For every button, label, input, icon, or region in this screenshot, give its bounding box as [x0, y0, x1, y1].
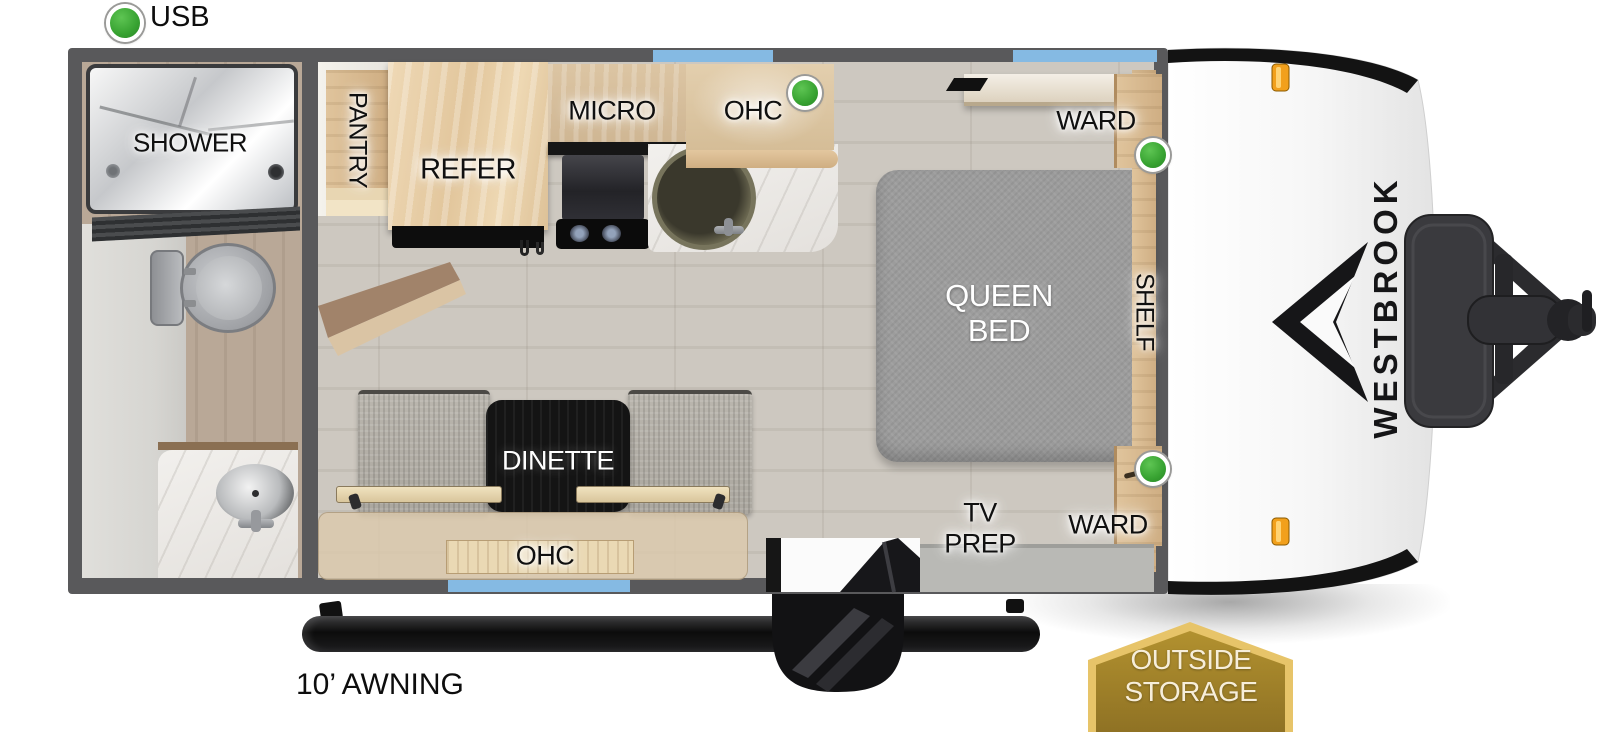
- ward-top-label: WARD: [1056, 106, 1136, 137]
- door-frame-post: [766, 538, 781, 592]
- usb-port-ward-top-icon: [1136, 138, 1170, 172]
- tv-prep-label-line2: PREP: [944, 529, 1016, 560]
- entry-step-wedge: [836, 536, 924, 594]
- queen-bed-label-line2: BED: [968, 313, 1030, 349]
- toilet-tank: [150, 250, 184, 326]
- ohc-front-strip: [686, 150, 838, 168]
- burner-icon: [570, 225, 589, 242]
- refer-label: REFER: [420, 154, 516, 187]
- coupler-latch: [1582, 290, 1592, 332]
- pantry-label: PANTRY: [343, 92, 372, 188]
- floorplan-diagram: USB WES: [0, 0, 1600, 732]
- burner-icon: [602, 225, 621, 242]
- cabinet-hook-icon: [536, 242, 544, 255]
- dinette-ledge-left: [336, 486, 502, 503]
- toilet-hinge: [184, 268, 196, 275]
- bathroom-faucet-spout: [251, 510, 261, 532]
- dinette-label: DINETTE: [502, 446, 614, 477]
- usb-port-ward-bottom-icon: [1136, 452, 1170, 486]
- awning-arm-icon: [1006, 599, 1024, 613]
- outside-storage-line2: STORAGE: [1125, 676, 1258, 708]
- outside-storage-line1: OUTSIDE: [1131, 644, 1252, 676]
- refrigerator: [388, 62, 548, 230]
- micro-label: MICRO: [568, 96, 656, 127]
- cabinet-hook-icon: [520, 240, 529, 256]
- marker-light-top-highlight: [1276, 67, 1281, 88]
- sink-drain-icon: [252, 490, 259, 497]
- ohc-dinette-label: OHC: [516, 541, 575, 572]
- queen-bed-label-line1: QUEEN: [945, 278, 1053, 314]
- corner-wedge-shelf: [302, 250, 477, 365]
- ohc-kitchen-label: OHC: [724, 96, 783, 127]
- shower-label: SHOWER: [133, 128, 247, 159]
- window-top-bedroom: [1013, 50, 1157, 62]
- usb-legend-label: USB: [150, 1, 210, 34]
- pantry-step: [326, 200, 388, 216]
- pantry-step: [326, 188, 388, 200]
- oven: [562, 155, 644, 221]
- marker-light-bottom-highlight: [1276, 521, 1281, 542]
- toilet-seat: [196, 256, 262, 320]
- window-bottom-dinette: [448, 580, 630, 592]
- dinette-ledge-right: [576, 486, 730, 503]
- awning-roll: [302, 616, 1040, 652]
- window-top-kitchen: [653, 50, 773, 62]
- usb-legend-icon: [106, 4, 144, 42]
- toilet-hinge: [184, 300, 196, 307]
- shower-drain2-icon: [268, 164, 284, 180]
- awning-label: 10’ AWNING: [296, 668, 464, 702]
- tongue-hitch: [1405, 215, 1596, 427]
- ward-bottom-label: WARD: [1068, 510, 1148, 541]
- usb-port-kitchen-icon: [788, 76, 822, 110]
- brand-wordmark: WESTBROOK: [1367, 157, 1407, 457]
- tv-prep-label-line1: TV: [963, 498, 997, 529]
- shower-drain-icon: [106, 164, 120, 178]
- kitchen-faucet-spout: [724, 218, 733, 236]
- shelf-label: SHELF: [1130, 273, 1159, 351]
- entry-steps: [758, 592, 918, 698]
- vanity-top-edge: [158, 442, 298, 450]
